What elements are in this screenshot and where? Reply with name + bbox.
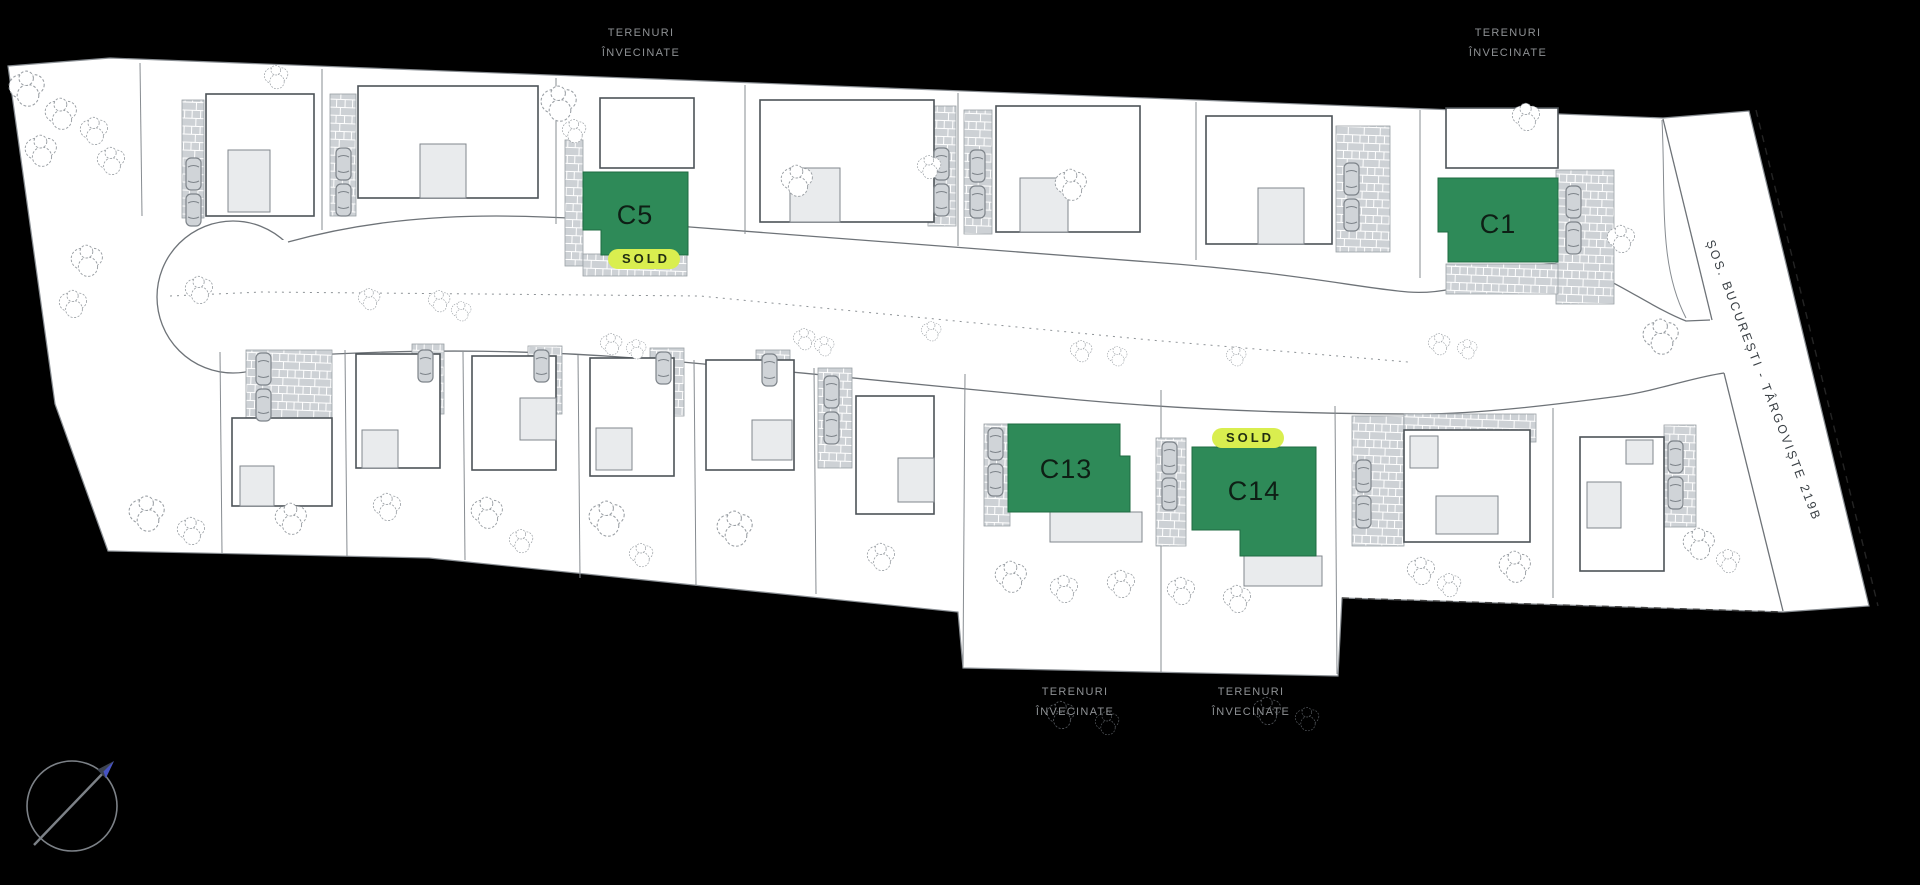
car-icon <box>336 184 351 216</box>
car-icon <box>824 412 839 444</box>
house-plain <box>856 396 934 514</box>
compass-north-icon <box>27 761 117 851</box>
terrace <box>1050 512 1142 542</box>
adjacent-land-line2: ÎNVECINATE <box>1468 46 1547 59</box>
car-icon <box>1668 477 1683 509</box>
house-plain <box>1446 108 1558 168</box>
car-icon <box>534 350 549 382</box>
house-c1-label: C1 <box>1480 209 1517 239</box>
house-plain <box>232 418 332 506</box>
sold-badge-c5: SOLD <box>608 249 680 269</box>
car-icon <box>186 158 201 190</box>
car-icon <box>1344 163 1359 195</box>
house-plain <box>996 106 1140 232</box>
adjacent-land-line1: TERENURI <box>1042 686 1109 698</box>
adjacent-land-label-top-right: TERENURI ÎNVECINATE <box>1468 27 1547 59</box>
car-icon <box>656 352 671 384</box>
house-plain <box>760 100 934 222</box>
car-icon <box>970 150 985 182</box>
car-icon <box>1344 199 1359 231</box>
car-icon <box>1566 222 1581 254</box>
tree-icon <box>1295 707 1318 730</box>
adjacent-land-line2: ÎNVECINATE <box>601 46 680 59</box>
sold-badge-c14: SOLD <box>1212 428 1284 448</box>
car-icon <box>186 194 201 226</box>
adjacent-land-line1: TERENURI <box>1475 27 1542 39</box>
house-c13-label: C13 <box>1040 454 1093 484</box>
car-icon <box>824 376 839 408</box>
house-plain <box>600 98 694 168</box>
adjacent-land-line2: ÎNVECINATE <box>1211 705 1290 718</box>
car-icon <box>336 148 351 180</box>
adjacent-land-line2: ÎNVECINATE <box>1035 705 1114 718</box>
adjacent-land-line1: TERENURI <box>608 27 675 39</box>
car-icon <box>1566 186 1581 218</box>
car-icon <box>256 353 271 385</box>
car-icon <box>1356 496 1371 528</box>
house-c5-label: C5 <box>617 200 654 230</box>
adjacent-land-line1: TERENURI <box>1218 686 1285 698</box>
car-icon <box>970 186 985 218</box>
car-icon <box>1162 442 1177 474</box>
house-plain <box>1580 437 1664 571</box>
car-icon <box>418 350 433 382</box>
house-plain <box>706 360 794 470</box>
car-icon <box>988 428 1003 460</box>
car-icon <box>1162 478 1177 510</box>
sold-badge-c5-label: SOLD <box>622 251 670 266</box>
car-icon <box>256 389 271 421</box>
car-icon <box>1356 460 1371 492</box>
site-plan: C5 C1 C13 C14 <box>0 0 1920 885</box>
adjacent-land-label-top-center: TERENURI ÎNVECINATE <box>601 27 680 59</box>
house-c14-label: C14 <box>1228 476 1281 506</box>
sold-badge-c14-label: SOLD <box>1226 430 1274 445</box>
house-plain <box>1206 116 1332 244</box>
car-icon <box>988 464 1003 496</box>
terrace <box>1244 556 1322 586</box>
car-icon <box>762 354 777 386</box>
car-icon <box>1668 441 1683 473</box>
house-c1[interactable]: C1 <box>1438 178 1558 262</box>
car-icon <box>934 184 949 216</box>
adjacent-land-label-bottom-center: TERENURI ÎNVECINATE <box>1035 686 1114 718</box>
house-c13[interactable]: C13 <box>1008 424 1130 512</box>
house-plain <box>206 94 314 216</box>
house-plain <box>358 86 538 198</box>
house-plain <box>1404 430 1530 542</box>
site-plan-canvas: C5 C1 C13 C14 <box>0 0 1920 885</box>
